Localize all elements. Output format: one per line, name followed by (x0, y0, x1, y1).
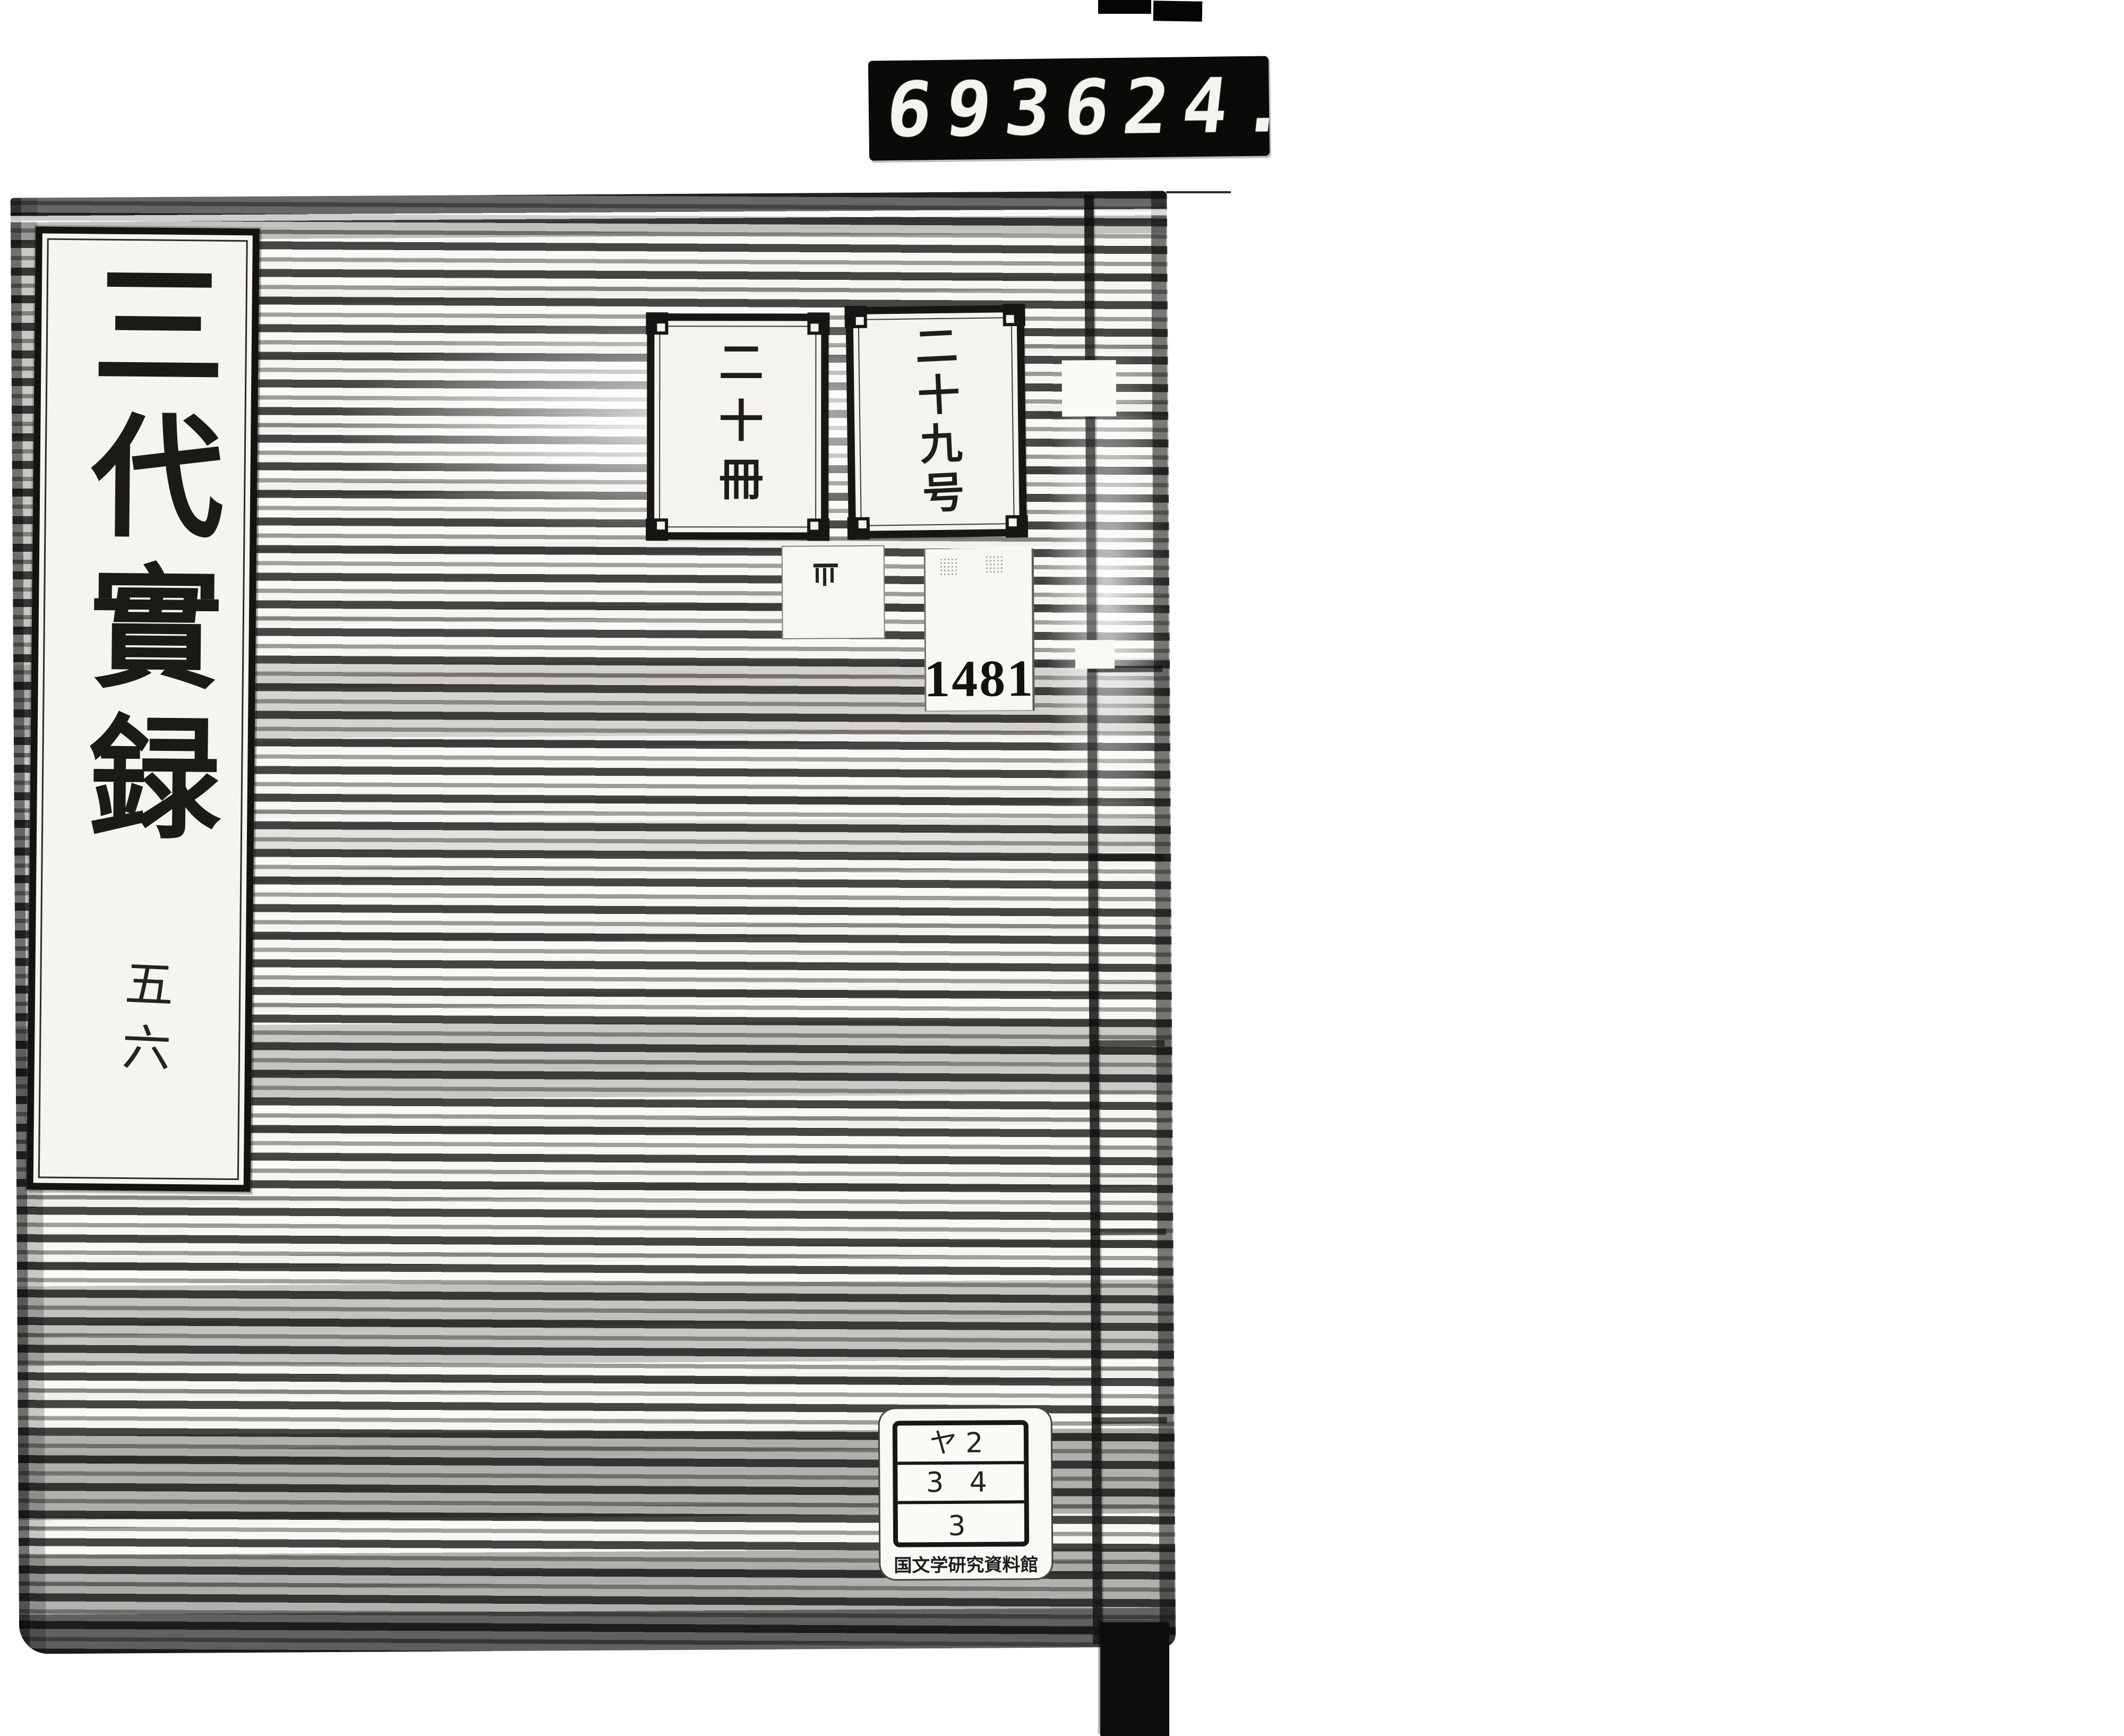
stamp-mark (816, 568, 819, 583)
fret-corner-icon (847, 517, 870, 540)
binding-paper-tab (1075, 640, 1115, 669)
call-number-table: ヤ2 3 4 3 (893, 1420, 1029, 1547)
fret-corner-icon (807, 518, 829, 541)
binding-stitch (1092, 1228, 1166, 1235)
scanned-book-cover-page: 693 624. 三代實録 五六 二十冊 二十九号 (0, 0, 2124, 1736)
accession-number: 1481 (924, 653, 1035, 705)
cover-edge-line (1166, 191, 1231, 193)
fret-corner-icon (1003, 304, 1025, 327)
binding-stitch (1089, 854, 1163, 861)
spine-shadow-bar (1100, 1622, 1169, 1736)
title-slip: 三代實録 五六 (27, 226, 260, 1192)
fret-corner-icon (646, 312, 668, 335)
frame-counter-display: 693 624. (868, 56, 1270, 160)
call-number-row-3: 3 (898, 1503, 1024, 1542)
count-label: 二十冊 (647, 313, 828, 540)
film-edge-tab (1098, 0, 1151, 14)
stamp-mark (823, 568, 826, 586)
film-edge-tab (1153, 1, 1203, 22)
small-white-slip (782, 545, 885, 639)
binding-stitch (1093, 1417, 1167, 1424)
book-title: 三代實録 (75, 256, 214, 860)
institution-name: 国文学研究資料館 (880, 1555, 1051, 1576)
call-number-label: ヤ2 3 4 3 国文学研究資料館 (878, 1407, 1054, 1581)
fret-corner-icon (844, 306, 867, 329)
count-label-text: 二十冊 (715, 339, 760, 514)
fret-corner-icon (807, 312, 829, 335)
counter-right-digits: 624. (1060, 68, 1306, 147)
book-cover: 三代實録 五六 二十冊 二十九号 (11, 191, 1176, 1654)
number-label-text: 二十九号 (910, 323, 962, 520)
stamp-mark (813, 563, 838, 567)
faint-stamp-mark (985, 555, 1004, 573)
call-number-row-2: 3 4 (897, 1464, 1024, 1504)
call-number-row-1: ヤ2 (897, 1425, 1024, 1465)
volume-numbers: 五六 (116, 957, 170, 1087)
faint-stamp-mark (939, 558, 958, 576)
counter-left-digits: 693 (883, 71, 1068, 148)
fret-corner-icon (646, 518, 668, 541)
number-label: 二十九号 (845, 305, 1027, 538)
title-slip-inner-frame: 三代實録 五六 (38, 238, 248, 1181)
binding-paper-tab (1062, 360, 1117, 417)
fret-corner-icon (1006, 515, 1029, 538)
binding-stitch (1090, 1040, 1164, 1047)
stamp-mark (830, 568, 834, 583)
accession-slip: 1481 (924, 549, 1035, 712)
